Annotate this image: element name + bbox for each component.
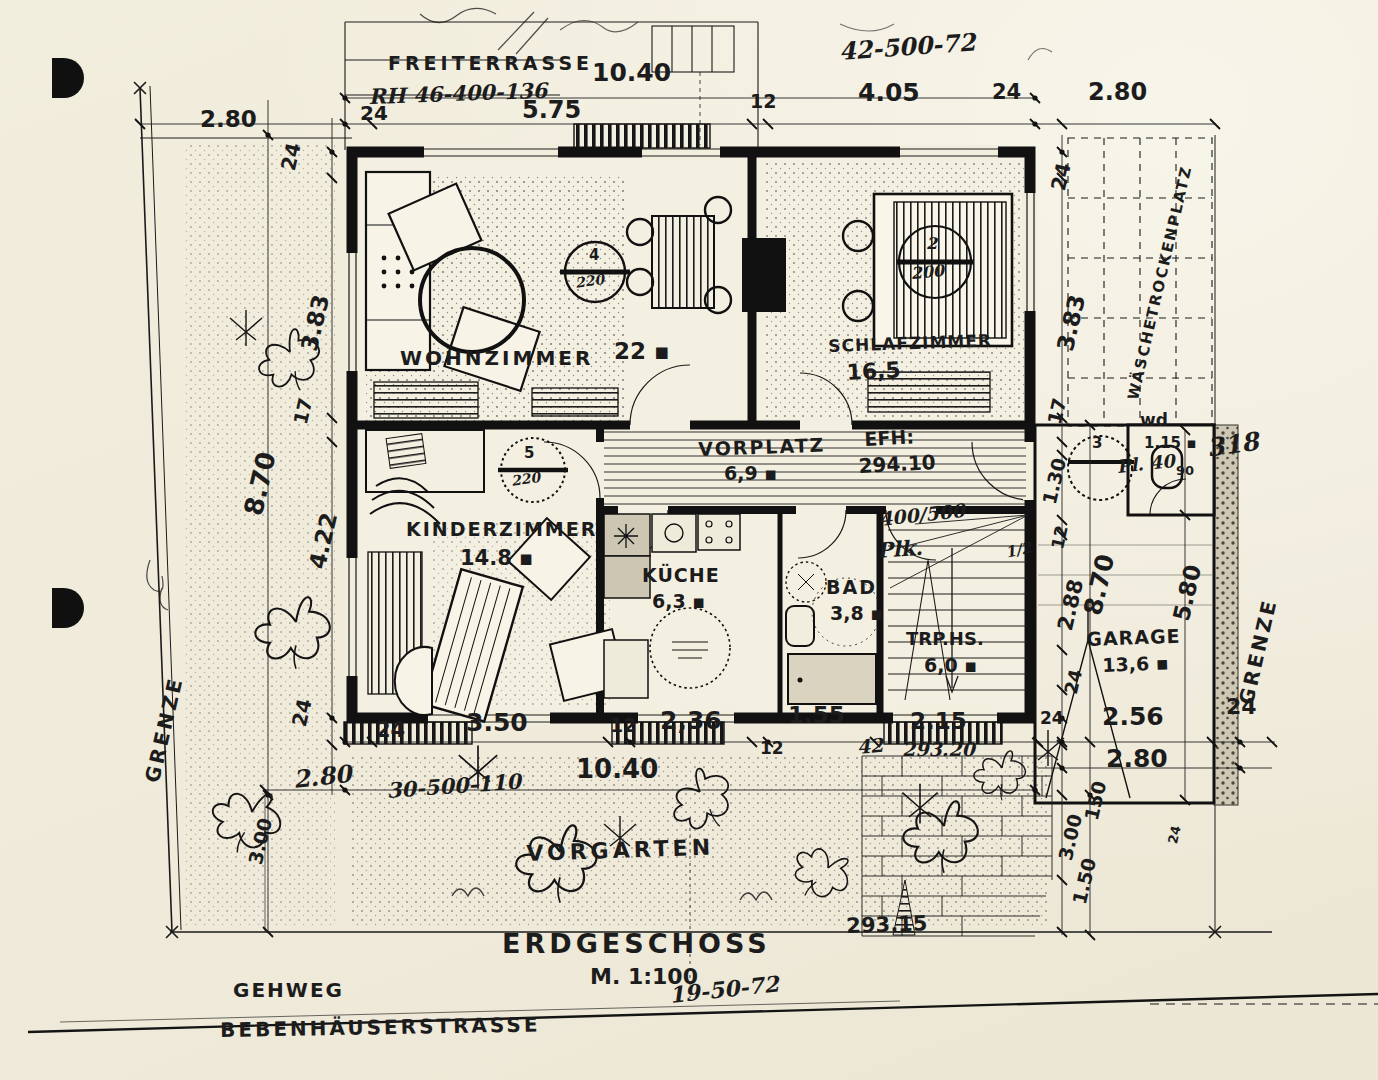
- room-label-kinderzimmer: KINDERZIMMER: [406, 520, 597, 539]
- room-label-treppenhaus: TRP.HS.: [906, 630, 984, 648]
- marker-wohnzimmer-no: 4: [589, 248, 599, 263]
- dim-bottom-24b: 24: [1040, 710, 1064, 727]
- room-area-treppenhaus: 6,0 ▪: [924, 656, 977, 675]
- marker-kinderzimmer-no: 5: [524, 446, 534, 461]
- page-title: ERDGESCHOSS: [502, 930, 771, 957]
- room-label-kueche: KÜCHE: [642, 566, 720, 585]
- marker-wohnzimmer-val: 220: [574, 272, 605, 290]
- dim-bottom-24a: 24: [376, 720, 405, 741]
- dim-top-575: 5.75: [522, 98, 581, 122]
- wc-label: wd: [1140, 412, 1168, 429]
- note-top-left: RH 46-400-136: [368, 80, 548, 107]
- wc-door-angle: 90: [1176, 464, 1194, 477]
- dim-top-24a: 24: [992, 82, 1021, 103]
- room-area-vorplatz: 6,9 ▪: [724, 464, 777, 483]
- dim-bottom-215: 2.15: [910, 710, 967, 733]
- floor-plan-drawing: [0, 0, 1378, 1080]
- punch-hole-icon: [52, 58, 84, 628]
- dim-top-280l: 2.80: [200, 108, 257, 131]
- room-label-bad: BAD: [826, 578, 877, 597]
- marker-garage-no: 3: [1092, 436, 1102, 451]
- garage-label: GARAGE: [1086, 627, 1181, 649]
- terrace-label: FREITERRASSE: [388, 54, 593, 73]
- room-area-bad: 3,8 ▪: [830, 604, 883, 623]
- dim-left-24a: 24: [278, 141, 304, 173]
- room-label-vorplatz: VORPLATZ: [698, 436, 826, 459]
- efh-label: EFH:: [864, 427, 914, 449]
- garage-area: 13,6 ▪: [1102, 654, 1169, 675]
- dim-top-1040: 10.40: [592, 60, 671, 85]
- room-area-schlafzimmer: 16,5: [846, 359, 901, 384]
- dim-top-12: 12: [750, 92, 776, 111]
- note-293-20: 293.20: [902, 740, 975, 759]
- wc-area: 1.15 ▪: [1144, 436, 1196, 451]
- dim-bottom-1040: 10.40: [576, 756, 658, 782]
- marker-kinderzimmer-val: 220: [510, 470, 541, 488]
- dim-bottom-256: 2.56: [1102, 704, 1164, 729]
- note-318: 318: [1205, 429, 1260, 461]
- sidewalk-label: GEHWEG: [233, 980, 344, 1000]
- dim-top-280: 2.80: [1088, 80, 1147, 104]
- dim-bottom-12b: 12: [760, 740, 784, 757]
- floor-plan-page: FREITERRASSE 10.40 42-500-72 RH 46-400-1…: [0, 0, 1378, 1080]
- dim-left-24b: 24: [289, 697, 315, 729]
- dim-bottom-155: 1.55: [788, 704, 845, 727]
- dim-bottom-12a: 12: [610, 716, 636, 735]
- chimney-block: [742, 238, 786, 312]
- dim-bottom-280: 2.80: [1106, 746, 1168, 771]
- note-stair-plk: Plk.: [876, 537, 923, 561]
- marker-schlafzimmer-no: 2: [926, 236, 937, 252]
- dim-bottom-24d: 24: [1166, 824, 1183, 845]
- street-label: BEBENHÄUSERSTRASSE: [220, 1014, 541, 1040]
- dim-top-405: 4.05: [858, 80, 920, 105]
- dim-bottom-236: 2,36: [660, 708, 722, 733]
- marker-schlafzimmer-val: 200: [910, 263, 945, 282]
- dim-top-24b: 24: [360, 103, 388, 123]
- room-area-kueche: 6,3 ▪: [652, 592, 705, 611]
- dim-bottom-24c: 24: [1226, 696, 1257, 718]
- efh-value: 294.10: [858, 452, 936, 476]
- room-label-wohnzimmer: WOHNZIMMER: [400, 348, 593, 368]
- room-area-wohnzimmer: 22 ▪: [614, 340, 670, 363]
- room-area-kinderzimmer: 14.8 ▪: [460, 548, 533, 569]
- note-293-15: 293.15: [846, 913, 928, 937]
- dim-right-24a: 24: [1048, 161, 1074, 193]
- note-280-bottom: 2.80: [292, 762, 353, 792]
- dim-bottom-350: 3.50: [466, 710, 528, 735]
- boundary-wall-strip: [1214, 425, 1238, 805]
- note-42: 42: [856, 736, 884, 757]
